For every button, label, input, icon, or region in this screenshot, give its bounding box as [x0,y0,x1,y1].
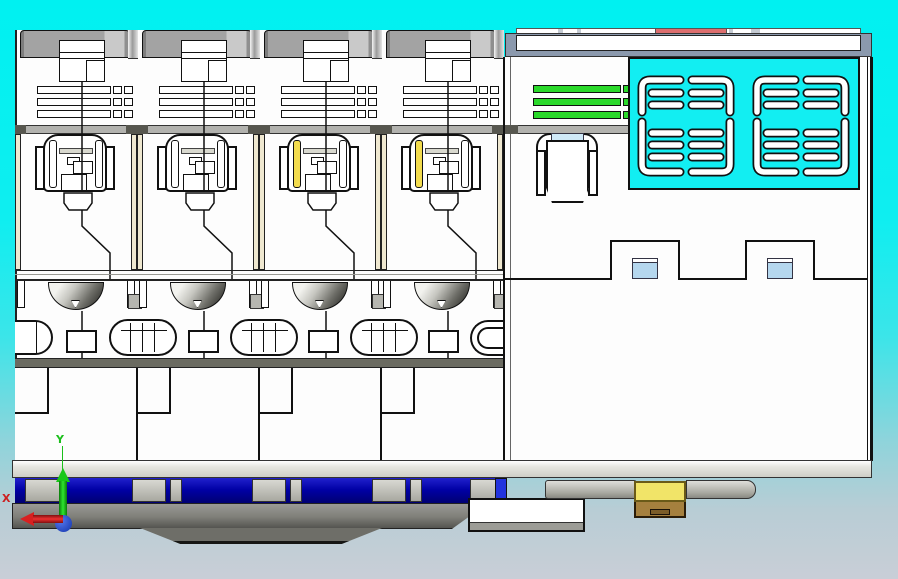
green-busbar [533,111,621,119]
module-boundary-line [136,368,138,460]
din-clip-notch [650,509,670,515]
clip-arch-side [588,150,598,196]
cad-viewport[interactable]: Y X [0,0,898,579]
clip-arch-inner [546,140,589,203]
housing-step-notch [381,368,415,414]
x-axis-label: X [2,492,10,505]
clip-arch-side [536,150,546,196]
y-axis-line [62,446,63,470]
aux-outline [505,278,872,280]
y-axis-label: Y [56,433,64,446]
rail-clip-block [170,479,182,502]
rail-clip-block [252,479,286,502]
latch-cylinder [545,480,637,499]
clamp-end-line [36,322,37,353]
housing-step-notch [15,368,49,414]
rail-clip-block [372,479,406,502]
section-line [15,274,504,275]
din-clip-yellow [634,481,686,502]
aux-right-edge [867,57,871,461]
terminal-clamp [230,319,298,356]
separator-block [505,125,518,134]
latch-cylinder [686,480,756,499]
bottom-rail-bar [12,460,872,478]
module-boundary-line [380,368,382,460]
side-slot [17,280,25,308]
terminal-clamp [109,319,177,356]
clip-arch-highlight [551,133,584,141]
rail-clip-block [410,479,422,502]
section-line [15,279,504,281]
side-slot [383,280,391,308]
clamp-spacer [188,330,219,353]
clamp-spacer [428,330,459,353]
side-slot [139,280,147,308]
green-busbar [533,85,621,93]
clamp-spacer [308,330,339,353]
rail-clip-block [132,479,166,502]
tab-window-top [767,258,793,263]
y-axis-arrowhead [56,468,70,482]
side-slot [261,280,269,308]
x-axis-arrow [33,515,63,523]
terminal-clamp [350,319,418,356]
vent-grille-slots [630,59,858,188]
vent-grille-panel [628,57,860,190]
base-foot [135,528,387,544]
module-boundary-line [258,368,260,460]
housing-step-notch [259,368,293,414]
aux-boundary-line [510,57,511,461]
housing-step-notch [137,368,171,414]
tab-window-top [632,258,658,263]
clamp-bracket-inner [477,327,504,349]
device-base [12,503,480,529]
busbar-slot [516,35,861,51]
clamp-end-shape [15,320,53,355]
rail-clip-block [290,479,302,502]
green-busbar [533,98,621,106]
section-line [15,270,504,271]
clamp-spacer [66,330,97,353]
x-axis-arrowhead [20,512,34,526]
slide-latch-strip [470,522,583,530]
